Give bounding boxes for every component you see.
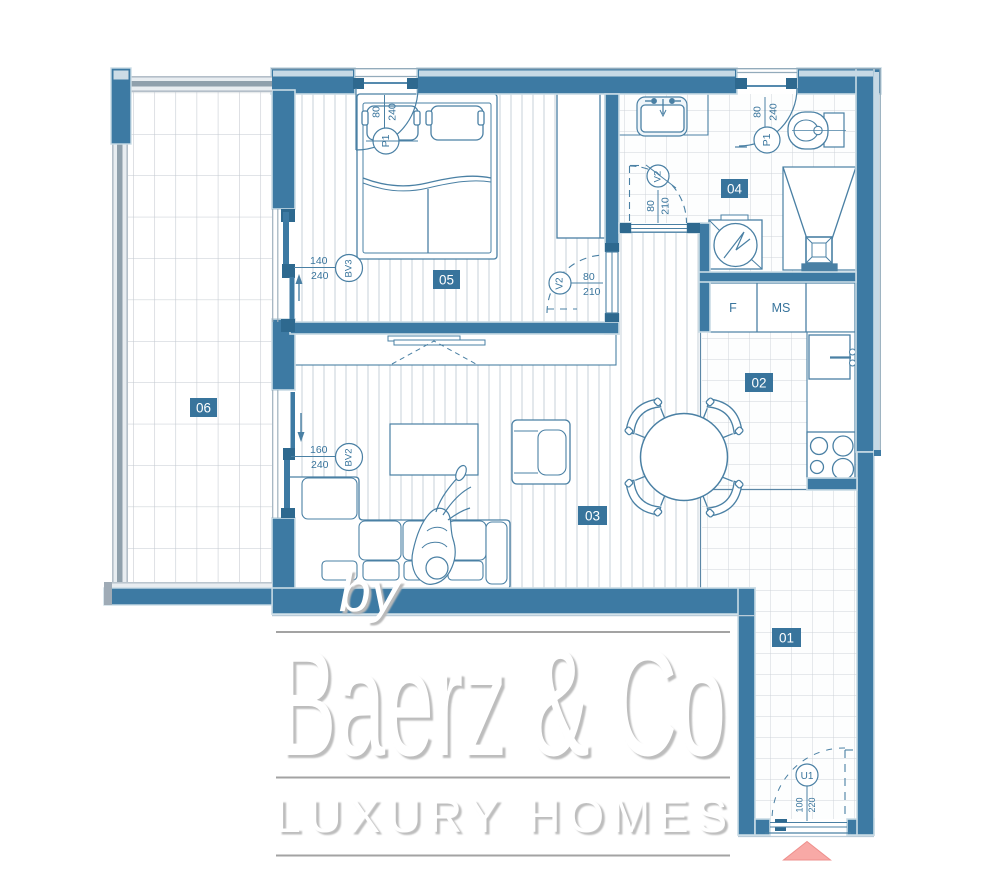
svg-text:240: 240 [386,103,398,121]
svg-text:80: 80 [645,200,657,212]
svg-text:210: 210 [659,197,671,215]
svg-text:V2: V2 [653,171,664,183]
svg-text:210: 210 [583,286,601,298]
svg-text:03: 03 [585,509,600,524]
svg-text:Baerz & Co: Baerz & Co [278,618,726,788]
svg-text:BV2: BV2 [344,449,355,467]
svg-text:MS: MS [772,301,791,315]
svg-text:80: 80 [751,106,763,118]
svg-text:02: 02 [751,376,766,391]
svg-text:100: 100 [794,797,804,812]
svg-text:80: 80 [583,271,595,283]
svg-text:by: by [339,560,403,624]
svg-text:240: 240 [311,459,329,471]
svg-text:P1: P1 [380,134,392,147]
svg-text:U1: U1 [801,771,814,782]
svg-text:220: 220 [807,797,817,812]
svg-text:04: 04 [727,182,743,197]
svg-text:01: 01 [779,631,794,646]
svg-text:06: 06 [196,401,211,416]
svg-text:160: 160 [310,444,328,456]
svg-text:F: F [729,301,737,315]
svg-text:240: 240 [767,103,779,121]
svg-text:V2: V2 [555,277,566,290]
svg-text:05: 05 [439,273,454,288]
svg-text:BV3: BV3 [344,260,355,278]
svg-text:80: 80 [370,106,382,118]
svg-text:P1: P1 [761,133,773,146]
svg-text:140: 140 [310,255,328,267]
svg-text:240: 240 [311,270,329,282]
